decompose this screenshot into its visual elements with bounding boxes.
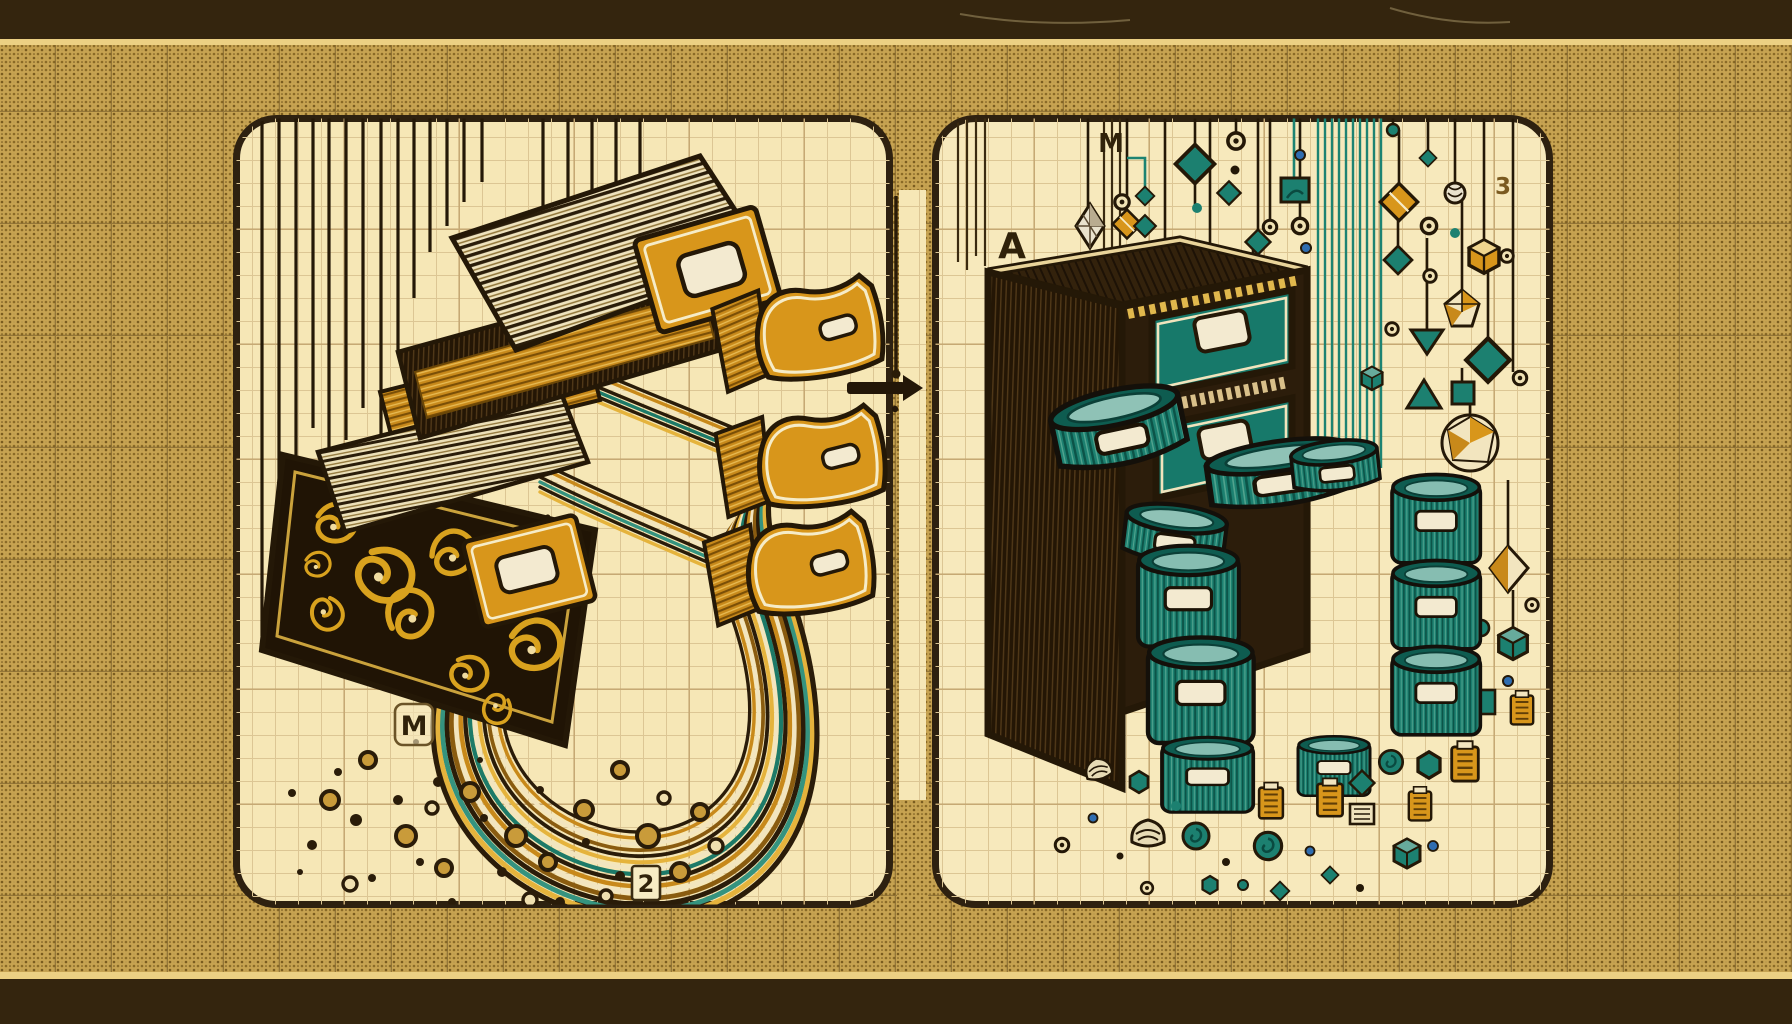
- drawer-label-plate: [1193, 309, 1251, 352]
- right-tag-3: 3: [1495, 174, 1511, 200]
- left-tag-2-text: 2: [638, 870, 655, 898]
- top-border-band: [0, 0, 1792, 45]
- right-tag-a: A: [998, 226, 1026, 267]
- cylinder-bin: [1392, 474, 1480, 562]
- cylinder-bin: [1392, 560, 1480, 648]
- left-panel: M 2: [236, 118, 890, 923]
- left-tag-m-text: M: [401, 711, 428, 742]
- bottom-border-band: [0, 972, 1792, 1024]
- cylinder-bin: [1392, 646, 1480, 734]
- cylinder-bin: [1148, 637, 1254, 743]
- right-tag-m: M: [1098, 129, 1124, 159]
- right-panel: A M 3: [935, 118, 1550, 905]
- cylinder-bin: [1162, 737, 1253, 812]
- vintage-diagram: M 2: [0, 0, 1792, 1024]
- left-tag-m: M: [395, 704, 433, 745]
- left-tag-2: 2: [632, 866, 660, 900]
- cabinet-side: [988, 272, 1122, 788]
- cylinder-bin: [1138, 546, 1239, 647]
- faceted-sphere-token: [1442, 415, 1498, 471]
- illustration-canvas: M 2: [0, 0, 1792, 1024]
